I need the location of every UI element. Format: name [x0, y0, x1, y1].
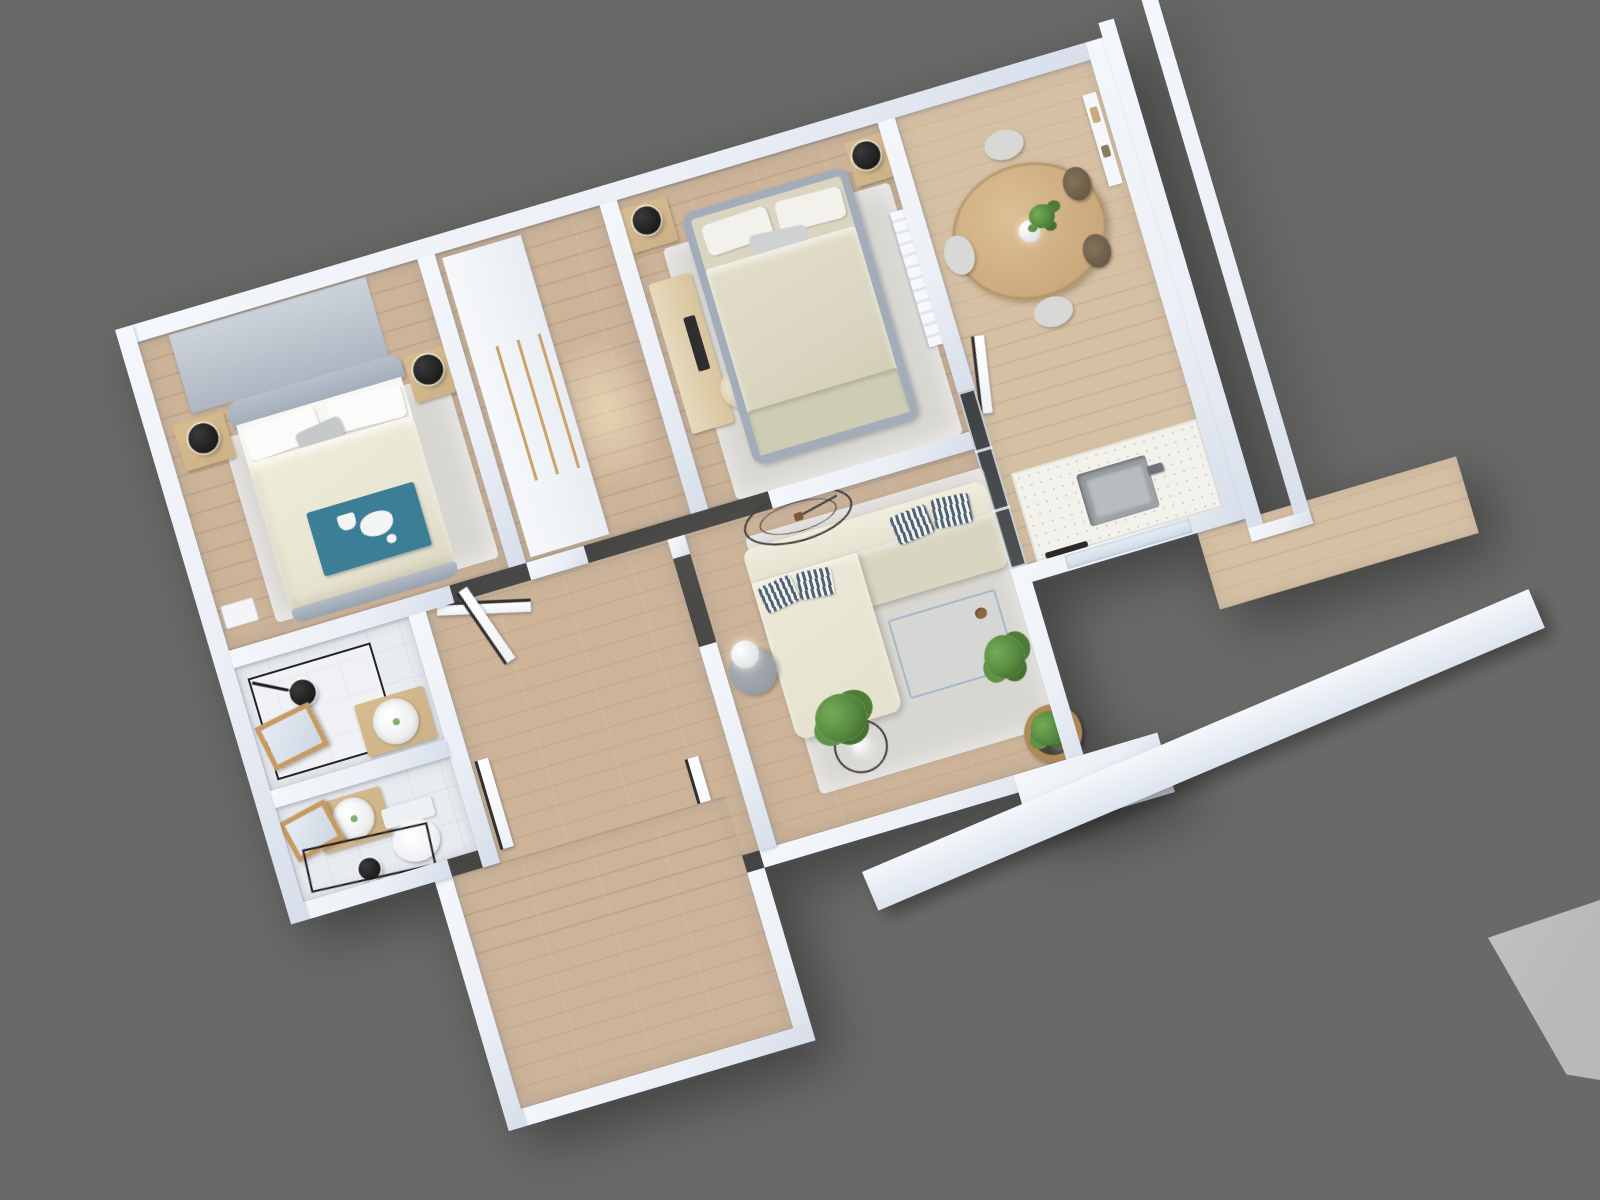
wall-tray — [220, 597, 259, 630]
blanket-cat-motif-dot — [386, 533, 398, 544]
coffee-table-bowl — [974, 606, 989, 620]
shelf-item-1 — [1089, 106, 1101, 124]
glass-partition-frame-1 — [975, 446, 993, 454]
sink-basin — [1083, 462, 1152, 519]
bed2-pillow-right — [773, 186, 847, 234]
wardrobe-handle-1 — [495, 346, 538, 481]
render-stage — [0, 0, 1600, 1200]
dining-chair-top — [981, 125, 1028, 165]
corner-slab — [1488, 900, 1600, 1080]
blanket-cat-motif-ear — [336, 512, 358, 532]
wardrobe-handle-2 — [516, 340, 559, 475]
apartment-floorplan — [115, 0, 1600, 1200]
sink-faucet — [1146, 462, 1164, 475]
glass-partition-frame-2 — [992, 505, 1010, 513]
shelf-item-2 — [1100, 144, 1111, 158]
door-leaf-master — [456, 587, 515, 665]
